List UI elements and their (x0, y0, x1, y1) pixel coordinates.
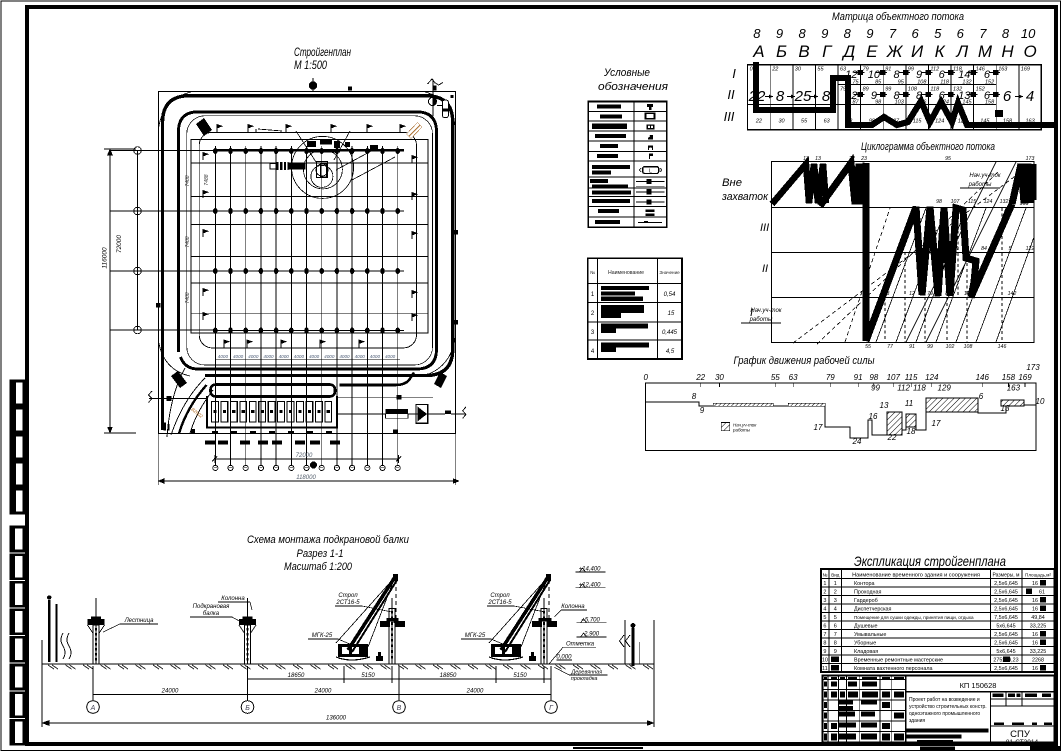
svg-text:145: 145 (962, 100, 972, 106)
svg-text:98: 98 (875, 100, 882, 106)
svg-text:91: 91 (854, 373, 863, 382)
svg-text:72000: 72000 (296, 453, 313, 459)
svg-text:99: 99 (885, 87, 891, 93)
svg-text:Площадь,м²: Площадь,м² (1025, 573, 1051, 578)
svg-text:9: 9 (834, 649, 837, 655)
svg-text:103: 103 (895, 100, 905, 106)
svg-text:5х6,645: 5х6,645 (996, 624, 1015, 630)
svg-text:24: 24 (852, 437, 862, 446)
svg-text:Подкрановая: Подкрановая (193, 604, 230, 610)
svg-text:98: 98 (936, 199, 942, 205)
svg-text:10: 10 (1036, 397, 1045, 406)
svg-text:33,225: 33,225 (1030, 649, 1047, 655)
svg-text:7488: 7488 (204, 174, 210, 185)
svg-text:16: 16 (1032, 607, 1038, 613)
svg-text:11: 11 (905, 399, 913, 408)
svg-text:10: 10 (822, 658, 828, 664)
svg-text:8: 8 (823, 641, 826, 647)
svg-text:7: 7 (823, 632, 826, 638)
svg-text:132: 132 (962, 80, 971, 86)
svg-text:0,445: 0,445 (662, 330, 678, 336)
svg-text:4000: 4000 (263, 354, 274, 359)
svg-text:129: 129 (938, 384, 952, 393)
svg-text:4000: 4000 (339, 354, 350, 359)
svg-text:7488: 7488 (185, 236, 191, 247)
svg-text:30: 30 (778, 119, 785, 125)
svg-text:Строп: Строп (490, 593, 510, 599)
svg-text:Колонна: Колонна (221, 596, 245, 602)
svg-text:5: 5 (823, 615, 826, 621)
svg-text:115: 115 (913, 119, 923, 125)
svg-text:7488: 7488 (185, 292, 191, 303)
svg-text:4000: 4000 (385, 354, 396, 359)
svg-text:Н: Н (1001, 42, 1014, 61)
svg-text:24000: 24000 (466, 689, 484, 695)
svg-text:13: 13 (880, 401, 889, 410)
svg-text:2: 2 (834, 590, 837, 596)
svg-text:Е: Е (866, 42, 878, 61)
svg-text:III: III (760, 222, 769, 234)
svg-text:И: И (911, 42, 924, 61)
svg-text:55: 55 (801, 119, 808, 125)
svg-text:63: 63 (840, 67, 847, 73)
svg-text:работы: работы (968, 182, 992, 188)
svg-text:I: I (732, 66, 736, 81)
svg-text:L: L (649, 169, 652, 175)
svg-text:136000: 136000 (326, 716, 347, 722)
svg-text:4000: 4000 (248, 354, 259, 359)
svg-text:2,5х6,645: 2,5х6,645 (994, 641, 1018, 647)
svg-text:79: 79 (927, 291, 933, 297)
svg-text:55: 55 (817, 67, 824, 73)
svg-text:Условные: Условные (603, 67, 650, 79)
svg-text:173: 173 (1026, 363, 1040, 372)
svg-text:132: 132 (953, 87, 962, 93)
svg-text:24000: 24000 (314, 689, 332, 695)
svg-text:22: 22 (771, 67, 778, 73)
svg-text:4000: 4000 (355, 354, 366, 359)
svg-text:63: 63 (925, 246, 931, 252)
svg-text:Схема монтажа подкрановой балк: Схема монтажа подкрановой балки (247, 534, 409, 546)
svg-text:В: В (397, 705, 402, 712)
svg-text:25: 25 (794, 88, 812, 105)
svg-text:10: 10 (1021, 26, 1036, 41)
svg-text:112: 112 (897, 384, 910, 393)
svg-text:3: 3 (834, 598, 837, 604)
svg-text:2СТ16-5: 2СТ16-5 (487, 600, 512, 606)
svg-text:158: 158 (1002, 373, 1016, 382)
svg-text:Разрез 1-1: Разрез 1-1 (297, 548, 344, 560)
svg-text:118: 118 (930, 87, 940, 93)
svg-text:5: 5 (834, 615, 837, 621)
svg-text:0,54: 0,54 (664, 292, 676, 298)
svg-text:Отметка: Отметка (566, 641, 595, 647)
svg-text:Л: Л (955, 42, 968, 61)
svg-text:115: 115 (905, 373, 918, 382)
svg-text:4: 4 (823, 607, 826, 613)
svg-text:5х6,645: 5х6,645 (996, 649, 1015, 655)
svg-text:4000: 4000 (279, 354, 290, 359)
svg-text:5150: 5150 (361, 673, 375, 679)
svg-text:8: 8 (692, 392, 697, 401)
svg-text:18650: 18650 (288, 673, 305, 679)
svg-text:Матрица объектного потока: Матрица объектного потока (832, 11, 964, 23)
svg-text:118000: 118000 (296, 475, 316, 481)
svg-text:8: 8 (753, 26, 761, 41)
svg-text:146: 146 (998, 344, 1007, 350)
svg-text:Гардероб: Гардероб (854, 598, 878, 604)
svg-text:8: 8 (1002, 26, 1010, 41)
svg-text:81-СТ3014: 81-СТ3014 (1006, 739, 1039, 746)
svg-text:18: 18 (907, 427, 916, 436)
svg-text:112: 112 (964, 291, 972, 297)
svg-text:95: 95 (945, 156, 951, 162)
svg-text:22: 22 (695, 373, 705, 382)
svg-text:99: 99 (871, 384, 880, 393)
svg-text:Вне: Вне (722, 177, 742, 189)
svg-text:87: 87 (852, 100, 859, 106)
svg-text:5: 5 (1009, 246, 1012, 252)
svg-text:17: 17 (932, 419, 941, 428)
svg-text:108: 108 (964, 344, 973, 350)
svg-text:одноэтажного промышленного: одноэтажного промышленного (909, 711, 980, 717)
svg-text:169: 169 (1021, 67, 1030, 73)
svg-text:89: 89 (863, 87, 869, 93)
svg-text:устройство строительных констр: устройство строительных констр. (909, 703, 987, 710)
svg-text:108: 108 (908, 87, 918, 93)
svg-text:Б: Б (776, 42, 787, 61)
svg-text:6: 6 (834, 624, 837, 630)
svg-text:График движения рабочей силы: График движения рабочей силы (734, 355, 875, 367)
svg-text:13: 13 (1001, 404, 1010, 413)
svg-text:4,5: 4,5 (666, 349, 675, 355)
svg-text:Кладовая: Кладовая (854, 649, 878, 655)
svg-text:III: III (724, 109, 735, 124)
svg-text:9: 9 (821, 26, 828, 41)
svg-text:А: А (90, 705, 96, 712)
svg-text:49,84: 49,84 (1031, 615, 1045, 621)
svg-text:163: 163 (998, 67, 1008, 73)
svg-text:7488: 7488 (185, 175, 191, 186)
svg-text:К: К (935, 42, 946, 61)
svg-text:7,5х6,645: 7,5х6,645 (994, 615, 1018, 621)
svg-text:2,5х6,645: 2,5х6,645 (994, 590, 1018, 596)
svg-text:8: 8 (798, 26, 806, 41)
svg-text:116000: 116000 (102, 247, 109, 269)
svg-text:112: 112 (930, 67, 939, 73)
svg-text:Колонна: Колонна (561, 604, 585, 610)
svg-text:4000: 4000 (309, 354, 320, 359)
svg-text:Проект работ на возведение и: Проект работ на возведение и (909, 697, 980, 703)
svg-text:33,225: 33,225 (1030, 624, 1047, 630)
svg-text:Наименование временного здания: Наименование временного здания и сооруже… (852, 573, 980, 579)
svg-text:работы: работы (749, 317, 773, 323)
svg-text:173: 173 (1026, 156, 1035, 162)
svg-text:5150: 5150 (513, 673, 527, 679)
svg-text:8: 8 (844, 26, 852, 41)
svg-text:146: 146 (976, 67, 986, 73)
svg-text:102: 102 (946, 344, 955, 350)
svg-text:146: 146 (976, 373, 990, 382)
svg-text:7: 7 (979, 26, 987, 41)
svg-text:4: 4 (834, 607, 837, 613)
svg-text:Циклограмма объектного потока: Циклограмма объектного потока (861, 141, 995, 153)
svg-text:22: 22 (755, 119, 762, 125)
svg-text:О: О (1023, 42, 1036, 61)
svg-text:15: 15 (668, 311, 675, 317)
svg-text:98: 98 (869, 373, 878, 382)
svg-text:4000: 4000 (233, 354, 244, 359)
svg-text:Д: Д (841, 42, 855, 61)
svg-text:Диспетчерская: Диспетчерская (854, 607, 892, 613)
svg-text:108: 108 (917, 80, 927, 86)
svg-text:71: 71 (953, 246, 959, 252)
svg-text:0,000: 0,000 (556, 655, 572, 661)
svg-text:9: 9 (776, 26, 783, 41)
svg-text:6: 6 (823, 624, 826, 630)
svg-text:2,5х6,645: 2,5х6,645 (994, 581, 1018, 587)
svg-text:30: 30 (715, 373, 724, 382)
svg-text:86: 86 (945, 291, 951, 297)
svg-text:Контора: Контора (854, 581, 875, 587)
svg-text:115: 115 (968, 199, 976, 205)
svg-text:158: 158 (985, 100, 995, 106)
svg-text:95: 95 (898, 80, 905, 86)
svg-text:Масштаб 1:200: Масштаб 1:200 (284, 561, 353, 573)
svg-text:5: 5 (934, 26, 942, 41)
svg-text:124: 124 (935, 119, 944, 125)
svg-text:118: 118 (913, 384, 926, 393)
svg-text:91: 91 (885, 67, 891, 73)
svg-text:13: 13 (815, 156, 821, 162)
svg-text:4000: 4000 (294, 354, 305, 359)
svg-text:МГК-25: МГК-25 (465, 633, 486, 639)
svg-text:МГК-25: МГК-25 (312, 633, 333, 639)
svg-text:М: М (978, 42, 993, 61)
svg-text:Строп: Строп (338, 593, 358, 599)
svg-text:Нач.уч-ток: Нач.уч-ток (969, 173, 1001, 179)
svg-text:Размеры, м: Размеры, м (993, 573, 1021, 579)
svg-text:16: 16 (869, 412, 878, 421)
svg-text:4000: 4000 (218, 354, 229, 359)
svg-text:М 1:500: М 1:500 (294, 60, 327, 72)
svg-text:124: 124 (925, 373, 939, 382)
svg-text:11: 11 (822, 666, 828, 672)
svg-text:6: 6 (979, 392, 984, 401)
svg-text:17: 17 (814, 423, 823, 432)
svg-text:107: 107 (887, 373, 901, 382)
svg-text:16: 16 (1032, 632, 1038, 638)
svg-text:1: 1 (823, 581, 826, 587)
svg-text:63: 63 (824, 119, 831, 125)
svg-text:9: 9 (700, 406, 705, 415)
svg-text:7: 7 (889, 26, 897, 41)
svg-text:Лестница: Лестница (124, 618, 155, 624)
svg-text:84: 84 (981, 246, 987, 252)
svg-text:152: 152 (976, 87, 985, 93)
svg-text:163: 163 (1020, 201, 1029, 207)
svg-text:№: № (822, 573, 827, 578)
svg-text:Проходная: Проходная (854, 590, 881, 596)
svg-text:прокладка: прокладка (571, 676, 598, 682)
svg-text:163: 163 (1007, 384, 1021, 393)
svg-text:1: 1 (834, 581, 837, 587)
svg-text:24000: 24000 (161, 689, 179, 695)
svg-text:79: 79 (826, 373, 835, 382)
svg-text:2: 2 (823, 590, 826, 596)
svg-text:А: А (752, 42, 764, 61)
svg-text:4: 4 (1026, 88, 1034, 105)
svg-text:2,5х6,645: 2,5х6,645 (994, 607, 1018, 613)
svg-text:3: 3 (887, 291, 890, 297)
svg-text:61: 61 (1039, 590, 1045, 596)
svg-text:79: 79 (863, 67, 869, 73)
svg-text:9: 9 (823, 649, 826, 655)
svg-text:II: II (762, 263, 768, 275)
svg-text:захваток: захваток (721, 191, 769, 203)
svg-text:55: 55 (771, 373, 780, 382)
svg-text:8: 8 (822, 88, 831, 105)
svg-text:16: 16 (1032, 666, 1038, 672)
svg-text:2СТ16-5: 2СТ16-5 (335, 600, 360, 606)
svg-text:16: 16 (1032, 581, 1038, 587)
svg-text:7: 7 (834, 632, 837, 638)
svg-text:балка: балка (203, 611, 220, 617)
svg-text:72000: 72000 (116, 235, 123, 253)
svg-text:91: 91 (909, 344, 915, 350)
svg-text:Душевые: Душевые (854, 624, 878, 630)
svg-text:6: 6 (1003, 88, 1012, 105)
svg-text:122: 122 (1026, 246, 1035, 252)
svg-text:Стройгенплан: Стройгенплан (294, 47, 351, 59)
svg-text:3: 3 (823, 598, 826, 604)
svg-text:обозначения: обозначения (598, 81, 668, 93)
svg-text:169: 169 (1018, 373, 1032, 382)
svg-text:107: 107 (951, 199, 961, 205)
svg-text:2268: 2268 (1032, 658, 1044, 664)
svg-text:работы: работы (732, 428, 751, 433)
svg-text:152: 152 (985, 80, 994, 86)
svg-text:В: В (798, 42, 809, 61)
svg-text:23: 23 (860, 156, 867, 162)
svg-text:22: 22 (887, 433, 897, 442)
svg-text:22: 22 (848, 156, 855, 162)
svg-text:№: № (590, 270, 595, 275)
svg-text:Б: Б (245, 705, 250, 712)
svg-text:Комната вахтенного персонала: Комната вахтенного персонала (854, 666, 933, 672)
svg-text:8: 8 (834, 641, 837, 647)
svg-text:4000: 4000 (324, 354, 335, 359)
svg-text:Временные ремонтные мастерские: Временные ремонтные мастерские (854, 658, 943, 664)
svg-text:142: 142 (1008, 291, 1017, 297)
svg-text:Помещение для сушки одежды, пр: Помещение для сушки одежды, принятия пищ… (854, 615, 974, 620)
svg-text:Ж: Ж (886, 42, 904, 61)
svg-text:132: 132 (1000, 199, 1009, 205)
svg-text:II: II (727, 87, 735, 102)
svg-text:Умывальные: Умывальные (854, 632, 886, 638)
svg-text:12: 12 (909, 291, 915, 297)
svg-text:99: 99 (927, 344, 933, 350)
svg-text:16: 16 (1032, 598, 1038, 604)
svg-text:16: 16 (1032, 641, 1038, 647)
svg-text:6: 6 (911, 26, 919, 41)
svg-text:12: 12 (803, 156, 809, 162)
svg-text:2,5х6,645: 2,5х6,645 (994, 666, 1018, 672)
svg-text:18850: 18850 (440, 673, 457, 679)
svg-text:2,5х6,645: 2,5х6,645 (994, 632, 1018, 638)
svg-text:8: 8 (776, 88, 785, 105)
svg-text:6: 6 (957, 26, 965, 41)
svg-text:здания: здания (909, 718, 925, 724)
svg-text:118: 118 (953, 67, 963, 73)
svg-text:124: 124 (984, 199, 993, 205)
svg-text:Уборные: Уборные (854, 641, 876, 647)
svg-text:4000: 4000 (370, 354, 381, 359)
svg-text:55: 55 (865, 344, 871, 350)
svg-text:85: 85 (875, 80, 882, 86)
svg-text:Значение: Значение (659, 270, 680, 275)
svg-text:118: 118 (940, 80, 950, 86)
svg-text:Вид: Вид (831, 573, 840, 578)
svg-text:Нач.уч-ток: Нач.уч-ток (750, 308, 782, 314)
svg-text:99: 99 (908, 67, 914, 73)
svg-text:0: 0 (643, 373, 648, 382)
svg-text:30: 30 (795, 67, 802, 73)
svg-text:75: 75 (852, 80, 859, 86)
svg-text:63: 63 (789, 373, 798, 382)
svg-text:КП 150628: КП 150628 (960, 681, 997, 690)
svg-text:2,5х6,645: 2,5х6,645 (994, 598, 1018, 604)
svg-text:Наименование: Наименование (608, 270, 644, 276)
svg-text:Экспликация стройгенплана: Экспликация стройгенплана (854, 553, 1006, 569)
svg-text:9: 9 (866, 26, 873, 41)
